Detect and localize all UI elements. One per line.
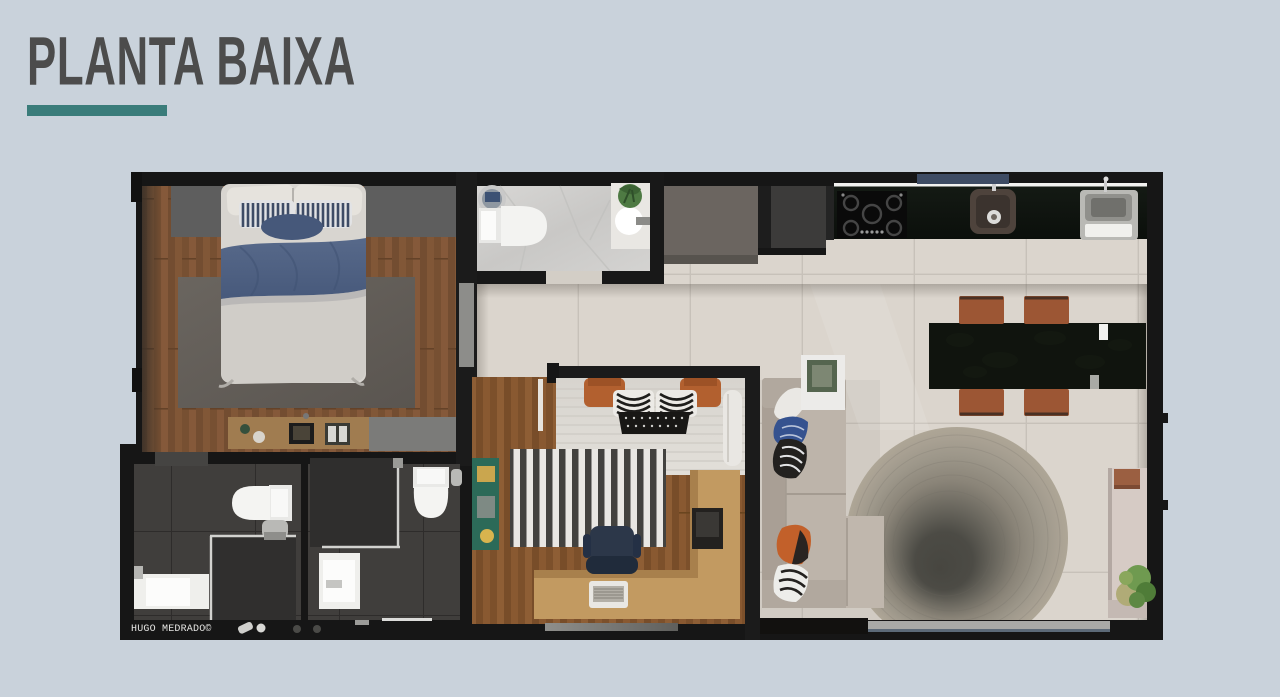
svg-text:HUGO MEDRADO©: HUGO MEDRADO© <box>131 623 212 635</box>
svg-text:PLANTA BAIXA: PLANTA BAIXA <box>27 24 356 100</box>
